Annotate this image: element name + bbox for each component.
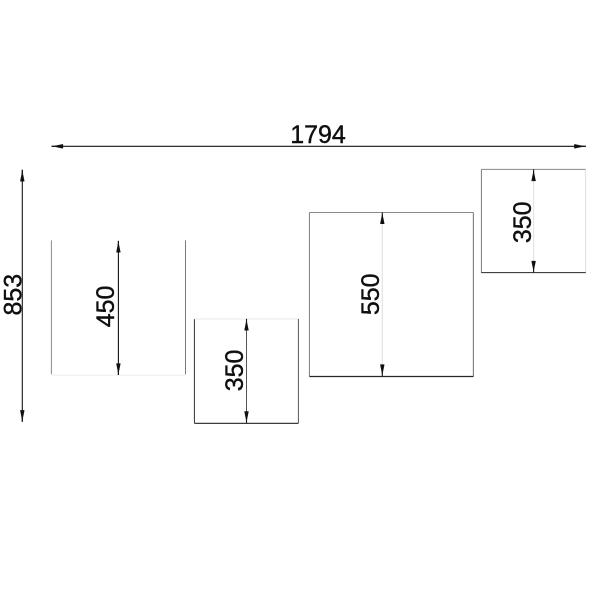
svg-text:1794: 1794 — [290, 121, 346, 149]
svg-text:350: 350 — [221, 350, 249, 392]
svg-text:450: 450 — [92, 286, 120, 328]
svg-text:350: 350 — [509, 201, 537, 243]
svg-text:853: 853 — [0, 274, 27, 316]
svg-text:550: 550 — [357, 273, 385, 315]
